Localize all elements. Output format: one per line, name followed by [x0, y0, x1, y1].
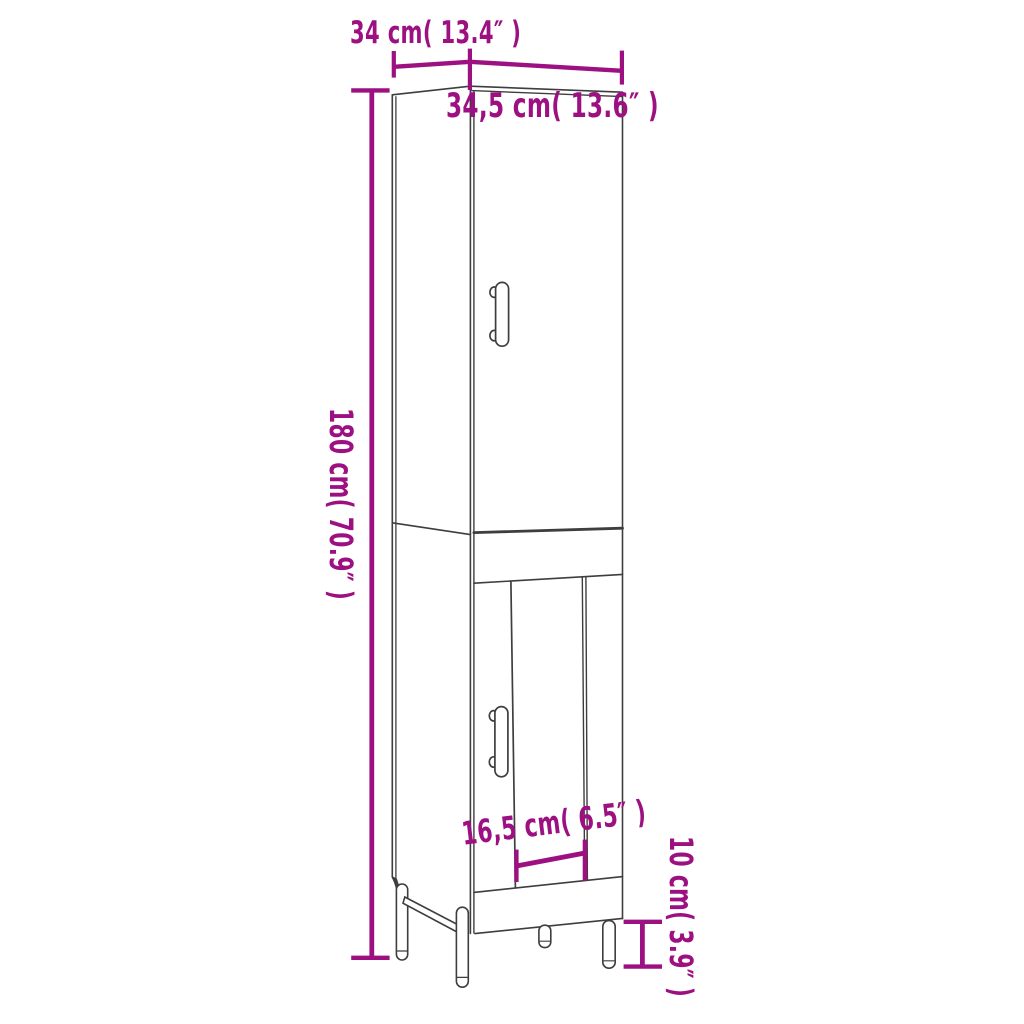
- dimension-opening-width: [516, 840, 585, 882]
- bottom-band-top-edge: [474, 877, 623, 893]
- opening-connector-line: [516, 853, 585, 866]
- leg-back-left: [396, 884, 407, 960]
- product-dimension-diagram: 34 cm( 13.4″ ) 34,5 cm( 13.6″ ) 180 cm( …: [0, 0, 1024, 1024]
- lower-door-handle: [489, 707, 508, 777]
- lower-handle-bar: [495, 707, 508, 777]
- height-label: 180 cm( 70.9″ ): [325, 408, 357, 600]
- depth-label: 34,5 cm( 13.6″ ): [446, 89, 659, 123]
- cabinet-legs: [396, 884, 615, 987]
- upper-door-handle: [490, 282, 509, 346]
- dimension-width-top: [394, 49, 622, 90]
- upper-handle-bar: [496, 282, 509, 346]
- leg-height-label: 10 cm( 3.9″ ): [665, 836, 697, 997]
- side-middle-edge: [392, 523, 470, 535]
- cabinet-line-art: [0, 0, 1024, 1024]
- width-connector-line: [394, 62, 622, 71]
- middle-band-bottom-edge: [474, 574, 623, 583]
- upper-door-bottom-edge: [474, 528, 623, 532]
- leg-back-right: [539, 925, 551, 947]
- leg-front-left: [456, 907, 468, 987]
- width-label: 34 cm( 13.4″ ): [350, 18, 521, 49]
- dimension-leg-height: [624, 922, 662, 967]
